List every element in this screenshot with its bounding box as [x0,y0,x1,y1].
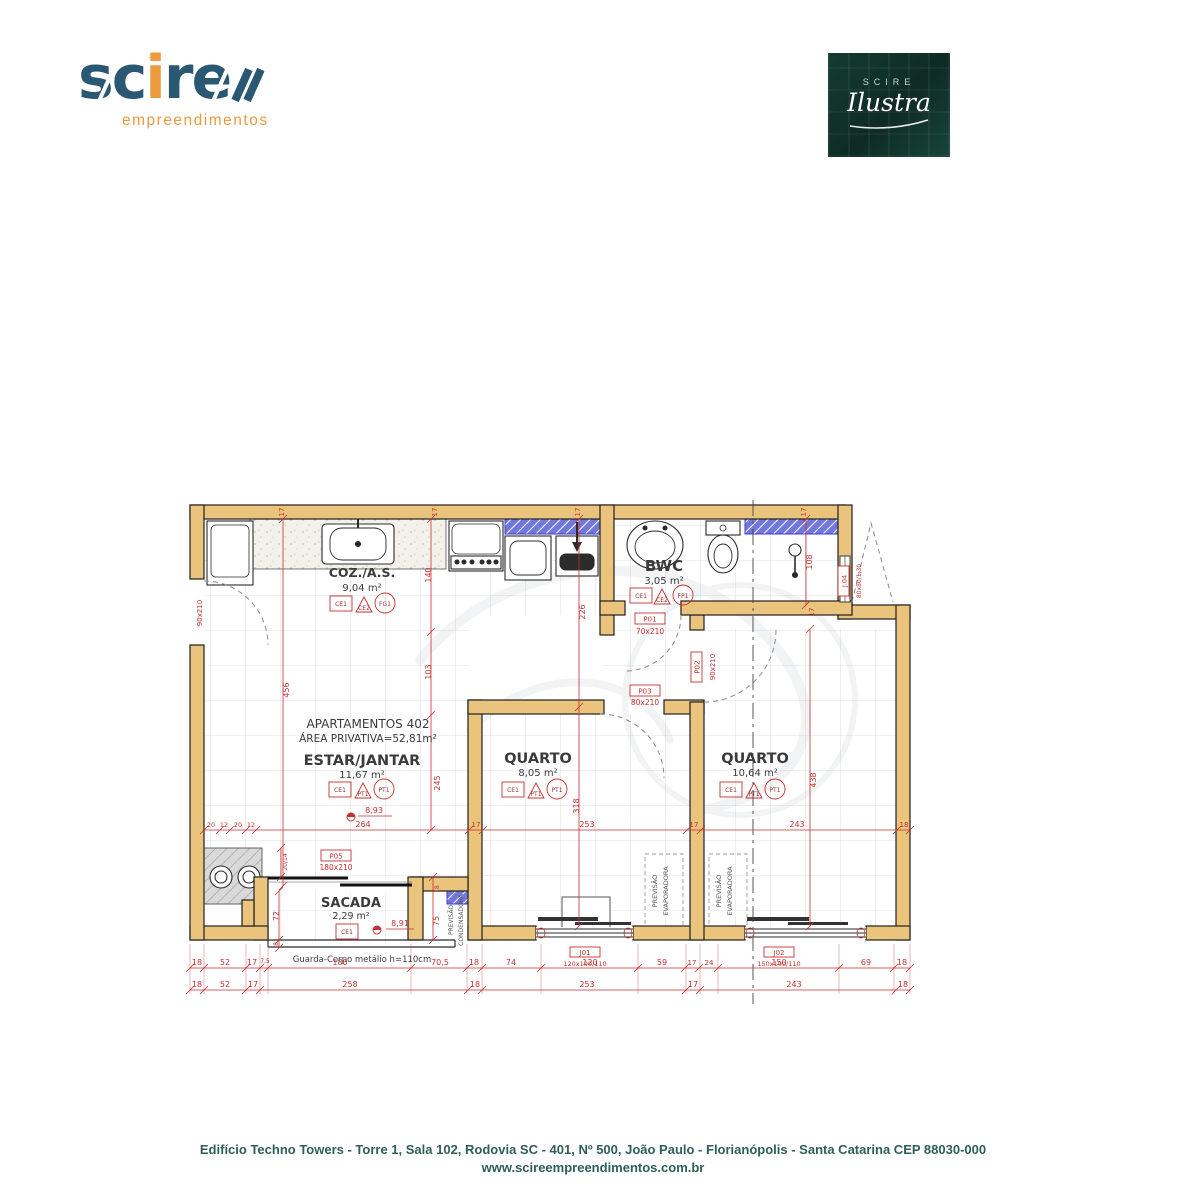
tag: CE2 [656,597,668,604]
laundry-corner-fixtures [204,848,262,904]
tag: PT1 [378,787,389,794]
dim-label: 18 [898,980,908,989]
dim-label: 20 [207,821,215,829]
company-logo: scire empreendimentos [78,48,378,130]
door-id: P02 [694,660,702,673]
dim-label: 17 [247,958,257,967]
badge-small-text: SCIRE [863,77,916,87]
door-size: 180x210 [319,863,352,872]
level-value: 8,93 [365,806,383,815]
dim-label: 150 [771,958,786,967]
dim-label: 226 [578,604,587,619]
dim-label: 20 [234,821,242,829]
window-size: 80x80/1,30 [856,564,863,598]
shower-icon [789,544,801,556]
dim-label: 17 [574,508,582,517]
dim-label: 24 [705,959,714,967]
footer-website: www.scireempreendimentos.com.br [0,1160,1186,1175]
window-id: J.04 [841,575,849,588]
room-label: QUARTO [721,751,789,767]
dim-label: 258 [342,980,357,989]
tag: CE1 [507,787,519,794]
guard-rail-note: Guarda-Corpo metálio h=110cm [293,955,432,965]
logo-mark-icon [238,68,268,108]
dim-label: 18 [900,821,909,829]
room-label: SACADA [321,896,381,911]
tag: PT1 [748,791,759,798]
dim-label: 243 [786,980,801,989]
tag: FP1 [678,593,689,600]
dim-label: 17 [808,608,816,617]
badge-underline-swoosh [844,117,934,131]
dim-label: 18 [470,980,480,989]
dim-label: 103 [424,664,433,679]
dim-label: 245 [433,775,442,790]
dim-label: 17 [472,821,481,829]
dim-label: 140 [424,567,433,582]
room-area: 10,64 m² [732,768,778,779]
tag: CE2 [358,605,370,612]
page: { "header": { "logo": {"brand": "scire",… [0,0,1186,1200]
dim-label: 70,5 [431,958,449,967]
tag: PT1 [551,787,562,794]
tag: CE1 [725,787,737,794]
room-label: COZ./A.S. [329,565,396,580]
dim-label: 264 [355,820,370,829]
dim-label: 17 [278,508,286,517]
dim-label: 18 [192,980,202,989]
room-area: 11,67 m² [339,770,385,781]
footer-address: Edifício Techno Towers - Torre 1, Sala 1… [0,1142,1186,1157]
dim-label: 17 [688,959,697,967]
dim-label: 253 [579,820,594,829]
dim-label: 75 [432,916,441,926]
dim-label: 17 [248,980,258,989]
dim-label: 18 [434,885,441,893]
dim-label: 17 [690,821,699,829]
previsao-label: PREVISÃO [650,875,659,908]
dim-label: 243 [789,820,804,829]
tag: PT1 [530,791,541,798]
badge-script-text: Ilustra [847,88,931,117]
toilet-icon [708,535,738,573]
dim-label: 180 [332,958,347,967]
door-id: P05 [329,853,342,861]
dim-label: 69 [861,958,871,967]
dim-label: 17 [688,980,698,989]
dim-label: 52 [220,980,230,989]
window-id: J02 [773,949,785,957]
dim-label: 318 [572,798,581,813]
granite-counter [505,519,600,534]
room-label: ESTAR/JANTAR [304,753,421,769]
laundry-tank-icon [505,536,551,580]
dim-label: 52 [220,958,230,967]
dim-label: 12 [247,821,255,829]
tag: CE1 [635,593,647,600]
logo-text: scire [78,43,230,113]
tag: CE1 [334,787,346,794]
guard-rail [268,940,455,947]
dim-label: 72 [272,911,281,921]
dim-label: 438 [809,772,818,787]
entry-door-size: 90x210 [196,600,204,626]
dim-label: 59 [657,958,667,967]
tag: PT1 [769,787,780,794]
logo-wordmark: scire [78,48,378,108]
toilet-tank-icon [706,521,740,535]
door-size: 90x210 [709,654,717,680]
door-size: 70x210 [636,627,665,636]
window-id: J01 [579,949,591,957]
previsao-label: PREVISÃO [448,905,455,935]
dim-label: 7,5 [260,958,270,965]
apartment-title: APARTAMENTOS 402 [307,717,430,731]
level-value: 8,91 [391,919,409,928]
tag: FG1 [379,601,391,608]
fridge-icon [207,521,253,585]
dim-label: 18 [897,958,907,967]
dim-label: 74 [506,958,516,967]
floor-plan: COZ./A.S. 9,04 m² BWC 3,05 m² APARTAMENT… [183,495,918,1010]
door-id: P03 [638,688,651,696]
dim-label: 20/14 [282,853,289,870]
tag: PT1 [357,791,368,798]
apartment-area: ÁREA PRIVATIVA=52,81m² [299,732,437,745]
room-label: QUARTO [504,751,572,767]
footer: Edifício Techno Towers - Torre 1, Sala 1… [0,1142,1186,1175]
scire-ilustra-badge: SCIRE Ilustra [828,53,950,157]
tag: CE1 [335,601,347,608]
evaporadora-label: EVAPORADORA [726,866,734,916]
previsao-label: PREVISÃO [714,875,723,908]
logo-subtitle: empreendimentos [122,112,378,130]
dim-label: 253 [579,980,594,989]
dim-label: 8 [273,942,280,946]
room-area: 3,05 m² [644,576,683,587]
room-area: 9,04 m² [342,583,381,594]
bwc-bench [745,519,838,534]
dim-label: 17 [431,508,439,517]
room-area: 8,05 m² [518,768,557,779]
dim-label: 18 [469,958,479,967]
dim-label: 456 [282,682,291,697]
dim-label: 120 [582,958,597,967]
door-size: 80x210 [631,698,660,707]
tag: CE1 [341,929,353,936]
dim-label: 12 [220,821,228,829]
dim-label: 18 [192,958,202,967]
dim-label: 17 [800,508,808,517]
room-area: 2,29 m² [332,911,369,922]
room-label: BWC [645,557,683,575]
dim-label: 108 [805,554,814,569]
door-id: P01 [643,616,656,624]
evaporadora-label: EVAPORADORA [662,866,670,916]
condensadora-label: CONDENSADORA [458,893,465,946]
